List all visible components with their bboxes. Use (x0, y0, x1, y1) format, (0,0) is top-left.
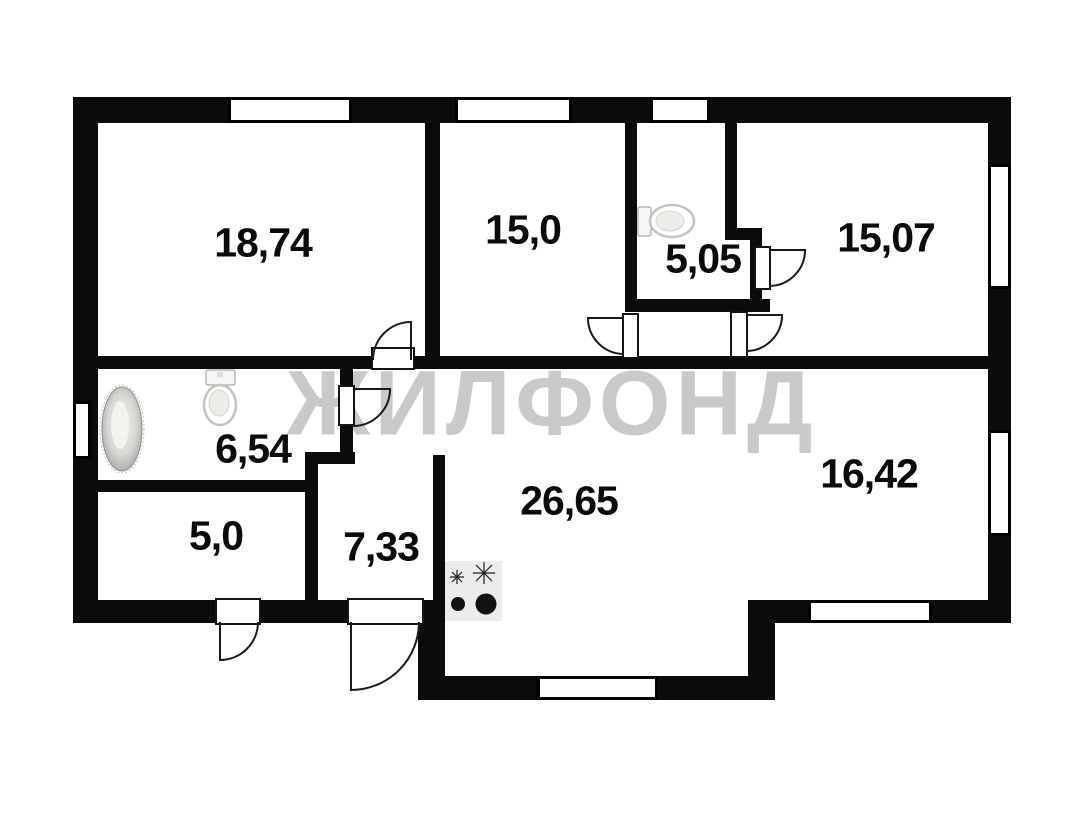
room-label-50: 5,0 (189, 513, 243, 560)
wall-bathroom-bottom (98, 480, 318, 492)
window-left-bathroom (73, 401, 91, 459)
door-arc-wc-to-1507 (769, 250, 805, 286)
window-right-room1507 (988, 164, 1011, 289)
window-bottom-room2665 (537, 676, 658, 700)
toilet-icon (204, 370, 236, 425)
room-label-1874: 18,74 (214, 220, 312, 267)
room-label-733: 7,33 (343, 524, 419, 571)
wall-hall-right (433, 455, 445, 677)
room-label-1642: 16,42 (820, 451, 918, 498)
room-label-1507: 15,07 (837, 215, 935, 262)
door-arc-vestibule-left (588, 318, 624, 354)
wall-between-wc-1507 (725, 123, 737, 228)
door-jamb-vestibule-left (622, 313, 639, 359)
door-arc-vestibule-right (746, 315, 782, 351)
room-label-505: 5,05 (665, 236, 741, 283)
wall-between-150-wc (625, 123, 637, 303)
room-label-654: 6,54 (215, 426, 291, 473)
wall-outer-left (73, 97, 98, 623)
bathtub-icon (100, 385, 144, 473)
door-jamb-room1874 (371, 347, 415, 370)
door-arc-entrance (351, 622, 419, 690)
toilet-icon (638, 205, 694, 237)
door-arc-exterior-50 (220, 622, 258, 660)
wall-between-1874-150 (425, 123, 440, 369)
stove-icon (445, 561, 502, 621)
wall-central-band (98, 356, 988, 369)
wall-between-50-733 (305, 462, 318, 600)
window-bottom-room1642 (808, 600, 932, 623)
window-top-room150 (455, 97, 572, 123)
door-jamb-bathroom (338, 385, 355, 426)
window-top-room1874 (228, 97, 352, 123)
door-jamb-wc-to-1507 (754, 246, 771, 290)
door-jamb-vestibule-right (730, 311, 748, 358)
floorplan: ЖИЛФОНД (0, 0, 1090, 825)
room-label-2665: 26,65 (520, 478, 618, 525)
door-jamb-entrance (347, 598, 424, 625)
door-jamb-exterior-50 (215, 598, 261, 625)
wall-wc-bottom (625, 299, 770, 312)
room-label-150: 15,0 (485, 207, 561, 254)
window-top-wc (650, 97, 710, 123)
window-right-room1642 (988, 430, 1011, 536)
